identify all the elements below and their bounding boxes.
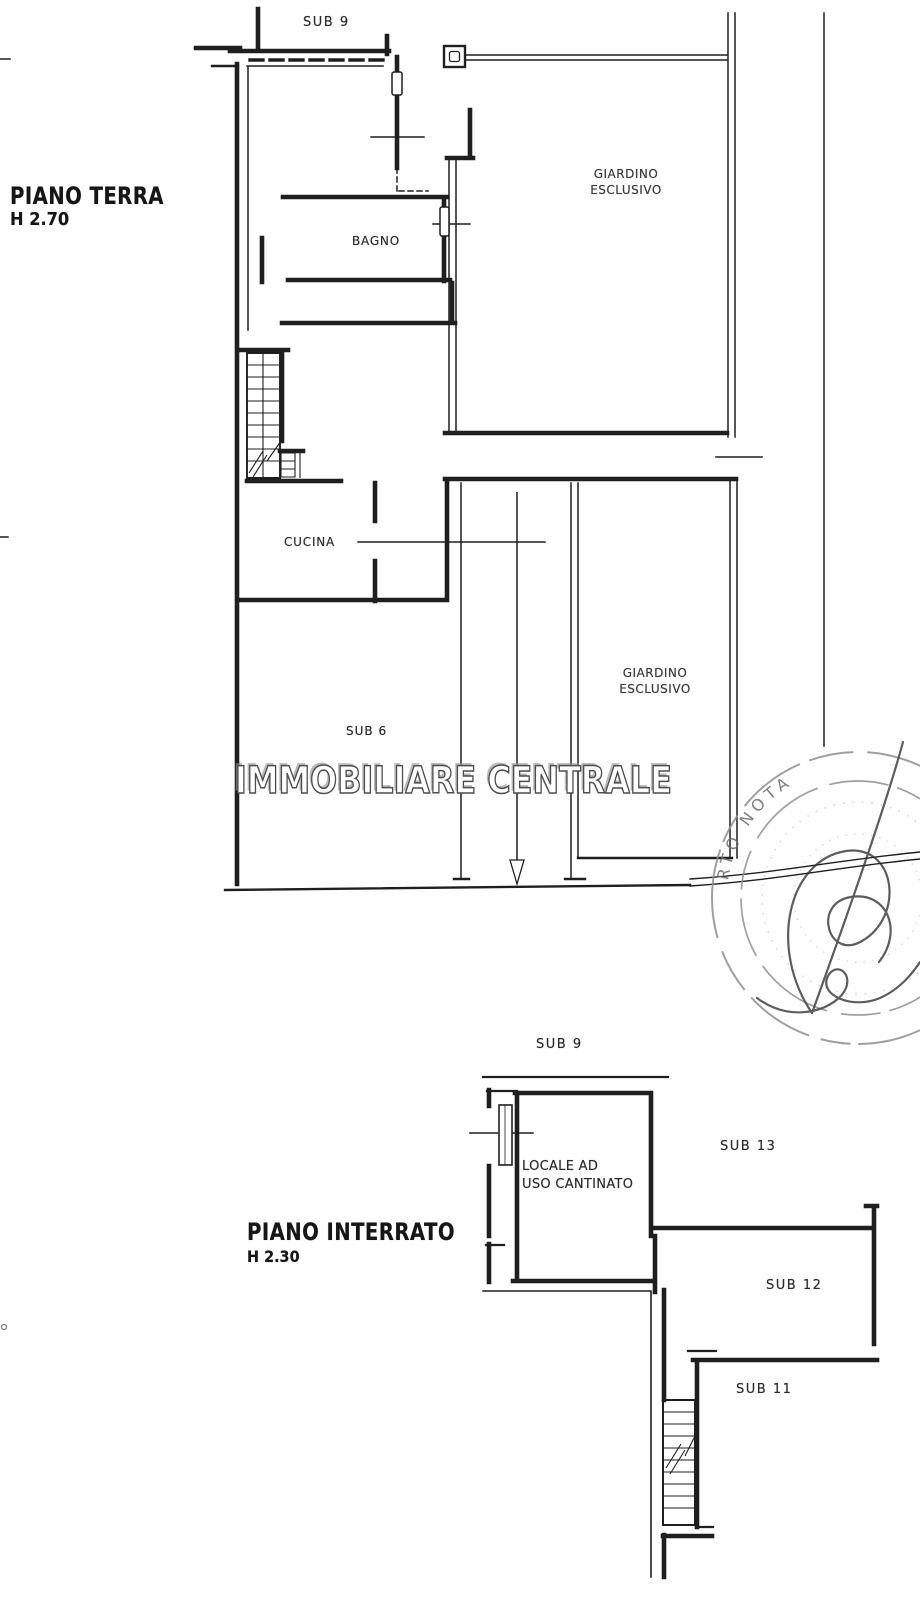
garden-top-label: GIARDINO ESCLUSIVO	[583, 166, 669, 198]
basement-title: PIANO INTERRATO	[247, 1218, 455, 1246]
stamp-arc-text-path: RTO NOTA	[713, 771, 796, 881]
gf-dashed-corner	[397, 168, 428, 194]
arrow-head	[510, 860, 524, 884]
floorplan-drawing: RTO NOTA	[0, 0, 920, 1613]
room-label-sub6: SUB 6	[346, 724, 387, 738]
ground-floor-height: H 2.70	[10, 209, 69, 230]
entry-window	[392, 72, 402, 95]
garden-top-line1: GIARDINO	[583, 166, 669, 182]
room-label-sub9-basement: SUB 9	[536, 1037, 583, 1052]
entry-path-arrow	[510, 492, 524, 884]
room-label-sub11: SUB 11	[736, 1382, 792, 1397]
room-label-cucina: CUCINA	[284, 535, 335, 549]
garden-bottom-line1: GIARDINO	[610, 665, 700, 681]
floorplan-page: RTO NOTA PIANO TERRA H 2.70 SUB 9 BAGNO …	[0, 0, 920, 1613]
basement-height: H 2.30	[247, 1247, 300, 1266]
scan-artifact-dot	[2, 1325, 7, 1330]
entry-meter-box-inner	[450, 52, 460, 62]
stamp-inner-ring	[741, 781, 920, 1015]
basement-stairs	[663, 1400, 695, 1525]
room-label-sub9-top: SUB 9	[303, 15, 350, 30]
ground-floor-stairs	[247, 353, 300, 478]
gf-thin-lines	[0, 13, 824, 878]
room-label-sub13: SUB 13	[720, 1139, 776, 1154]
room-label-bagno: BAGNO	[352, 234, 400, 248]
bm-thin-lines	[470, 1133, 651, 1577]
garden-bottom-label: GIARDINO ESCLUSIVO	[610, 665, 700, 697]
garden-top-line2: ESCLUSIVO	[583, 182, 669, 198]
bm-stairs-treads	[663, 1412, 695, 1508]
signature-stroke-2	[788, 851, 891, 1013]
room-label-cellar: LOCALE AD USO CANTINATO	[522, 1158, 633, 1194]
cellar-line2: USO CANTINATO	[522, 1176, 633, 1194]
signature-stroke-1	[812, 742, 903, 1013]
door-window-symbols	[392, 46, 465, 236]
bm-stairs-outline	[663, 1400, 695, 1525]
agency-watermark: IMMOBILIARE CENTRALE	[235, 761, 672, 801]
basement-walls	[470, 1077, 877, 1577]
notary-stamp: RTO NOTA	[712, 742, 920, 1044]
ground-floor-title: PIANO TERRA	[10, 182, 164, 210]
room-label-sub12: SUB 12	[766, 1278, 822, 1293]
bm-window	[499, 1105, 512, 1165]
ground-floor-walls	[0, 9, 920, 890]
stamp-arc-text: RTO NOTA	[713, 771, 796, 881]
stamp-texture-ring-1	[762, 802, 920, 994]
garden-bottom-line2: ESCLUSIVO	[610, 681, 700, 697]
cellar-line1: LOCALE AD	[522, 1158, 633, 1176]
bagno-window	[440, 207, 449, 236]
stairs-treads	[247, 353, 300, 478]
